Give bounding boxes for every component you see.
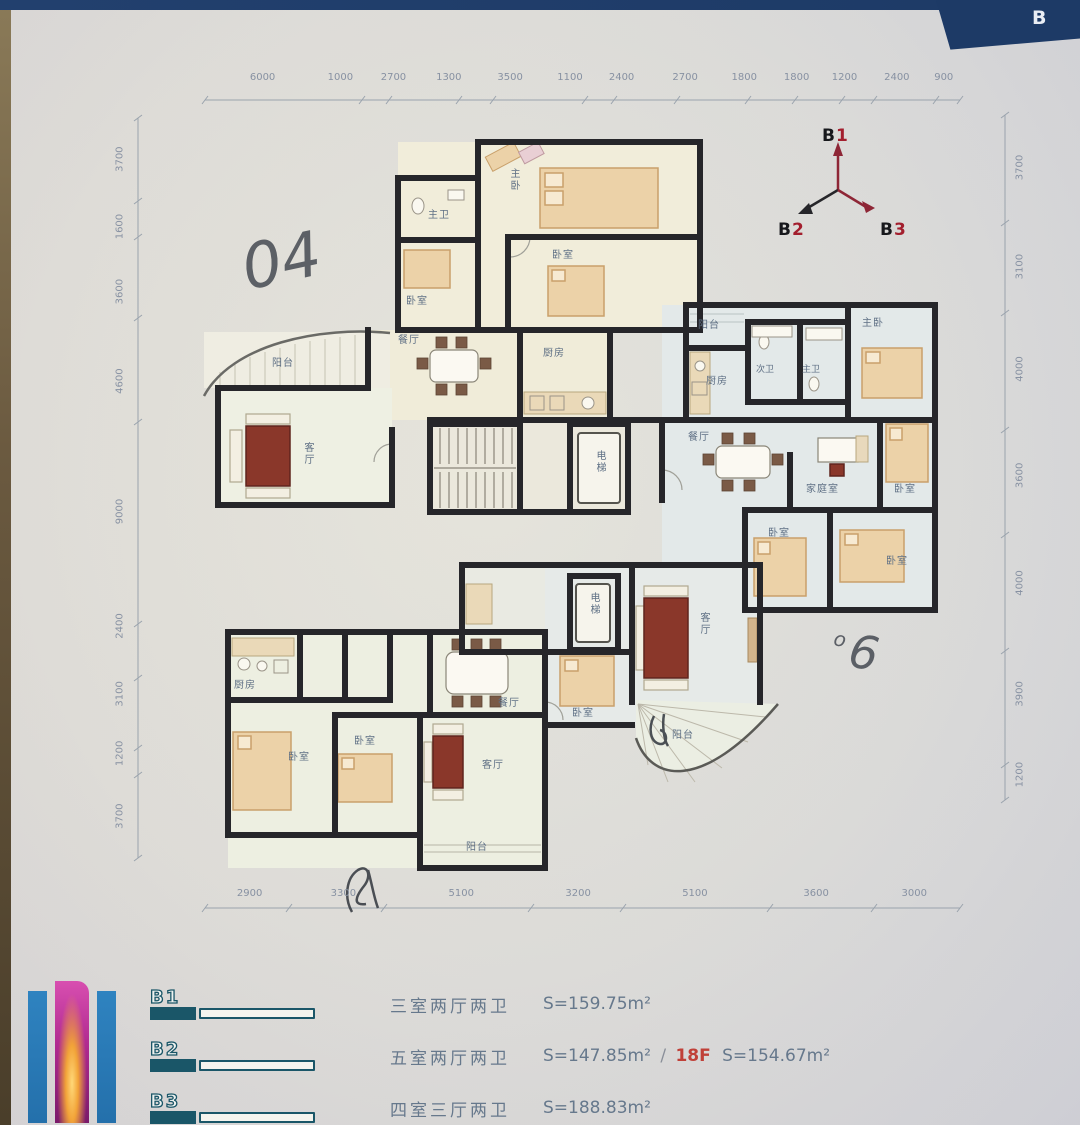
legend-bar-solid xyxy=(150,1007,196,1020)
dim-value: 3700 xyxy=(1012,115,1028,220)
dim-value: 3600 xyxy=(764,888,869,902)
dim-value: 1800 xyxy=(770,72,822,86)
legend-code: B3 xyxy=(150,1093,320,1110)
dim-value: 3000 xyxy=(869,888,961,902)
compass-letter: B xyxy=(778,220,792,240)
dim-value: 3100 xyxy=(1012,220,1028,312)
logo-tower-panel xyxy=(55,981,89,1123)
legend-row-b2: B2 五室两厅两卫 S=147.85m² / 18F S=154.67m² xyxy=(150,1034,830,1078)
dim-value: 1100 xyxy=(549,72,591,86)
dim-value: 5100 xyxy=(626,888,764,902)
dim-value: 5100 xyxy=(392,888,530,902)
corner-banner-letter: B xyxy=(1032,7,1046,29)
legend-bar-solid xyxy=(150,1111,196,1124)
compass-label-b3: B3 xyxy=(880,220,907,240)
compass-label-b2: B2 xyxy=(778,220,805,240)
dim-value: 900 xyxy=(927,72,960,86)
legend-bar-outline xyxy=(199,1112,315,1123)
label-unitA-bedroom-2: 卧室 xyxy=(406,292,428,307)
dim-value: 3900 xyxy=(1012,639,1028,749)
dim-value: 4000 xyxy=(1012,527,1028,639)
label-unitA-bedroom-1: 卧室 xyxy=(552,246,574,261)
label-unitC-bedroom-1: 卧室 xyxy=(288,748,310,763)
dim-value: 1200 xyxy=(112,731,128,775)
compass-arrows xyxy=(798,142,875,214)
legend-unit-area: S=147.85m² / 18F S=154.67m² xyxy=(543,1046,830,1066)
label-unitD-bedroom: 卧室 xyxy=(572,704,594,719)
legend-unit-area: S=188.83m² xyxy=(543,1098,665,1118)
label-unitB-balcony: 阳台 xyxy=(698,316,720,331)
dim-value: 1200 xyxy=(823,72,866,86)
dimensions-bottom: 2900 3300 5100 3200 5100 3600 3000 xyxy=(205,888,960,902)
legend-bar xyxy=(150,1007,320,1020)
dim-value: 3300 xyxy=(294,888,392,902)
legend-bar xyxy=(150,1059,320,1072)
handwritten-prefix: o xyxy=(832,626,848,652)
legend-code: B2 xyxy=(150,1041,320,1058)
label-unitC-balcony: 阳台 xyxy=(466,838,488,853)
legend-area-value: S=159.75m² xyxy=(543,994,651,1014)
label-unitB-family-room: 家庭室 xyxy=(806,480,839,495)
dim-value: 2400 xyxy=(591,72,652,86)
legend-icon-b2: B2 xyxy=(150,1041,320,1072)
compass-digit: 3 xyxy=(894,220,907,240)
compass-letter: B xyxy=(880,220,894,240)
dim-value: 3600 xyxy=(112,251,128,332)
dim-value: 3600 xyxy=(1012,424,1028,527)
handwritten-unit-number-right: o 6 xyxy=(828,620,883,681)
legend-floor-note: 18F xyxy=(675,1046,710,1066)
photo-edge-left xyxy=(0,0,11,1125)
label-unitA-living: 客厅 xyxy=(300,442,315,466)
dim-value: 2400 xyxy=(112,595,128,658)
legend-row-b3: B3 四室三厅两卫 S=188.83m² xyxy=(150,1086,665,1125)
label-elevator-1: 电梯 xyxy=(592,450,607,474)
dim-value: 1600 xyxy=(112,201,128,251)
label-elevator-2: 电梯 xyxy=(586,592,601,616)
label-unitB-kitchen: 厨房 xyxy=(706,372,728,387)
legend-code: B1 xyxy=(150,989,320,1006)
legend-icon-b3: B3 xyxy=(150,1093,320,1124)
label-unitC-dining: 餐厅 xyxy=(498,694,520,709)
dim-value: 2700 xyxy=(361,72,427,86)
legend-unit-type: 五室两厅两卫 xyxy=(390,1044,525,1069)
dim-value: 4600 xyxy=(112,333,128,430)
floorplan-drawing xyxy=(0,0,1080,1125)
floorplan-page: B 6000 1000 2700 1300 3500 1100 2400 270… xyxy=(0,0,1080,1125)
dim-value: 4000 xyxy=(1012,313,1028,425)
label-unitA-master-bath: 主卫 xyxy=(428,206,450,221)
logo-bar-left xyxy=(28,991,47,1123)
legend-area-value: S=147.85m² xyxy=(543,1046,651,1066)
dim-value: 3700 xyxy=(112,118,128,201)
label-unitD-balcony: 阳台 xyxy=(672,726,694,741)
dimensions-top: 6000 1000 2700 1300 3500 1100 2400 2700 … xyxy=(205,72,960,86)
dim-value: 1000 xyxy=(320,72,360,86)
legend-icon-b1: B1 xyxy=(150,989,320,1020)
dimensions-right: 3700 3100 4000 3600 4000 3900 1200 xyxy=(1012,115,1028,800)
label-unitB-dining: 餐厅 xyxy=(688,428,710,443)
dimensions-left: 3700 1600 3600 4600 9000 2400 3100 1200 … xyxy=(112,118,128,858)
dim-value: 6000 xyxy=(205,72,320,86)
legend-area-value: S=188.83m² xyxy=(543,1098,651,1118)
dim-value: 2700 xyxy=(652,72,718,86)
compass-digit: 2 xyxy=(792,220,805,240)
legend-unit-type: 三室两厅两卫 xyxy=(390,992,525,1017)
legend-bar-solid xyxy=(150,1059,196,1072)
dim-value: 3100 xyxy=(112,657,128,731)
compass-label-b1: B1 xyxy=(822,126,849,146)
legend-bar xyxy=(150,1111,320,1124)
legend-row-b1: B1 三室两厅两卫 S=159.75m² xyxy=(150,982,665,1026)
legend-unit-area: S=159.75m² xyxy=(543,994,665,1014)
label-unitA-kitchen: 厨房 xyxy=(543,344,565,359)
label-unitB-master-bath: 主卫 xyxy=(802,362,820,375)
label-unitB-second-bath: 次卫 xyxy=(756,362,774,375)
dim-value: 2400 xyxy=(866,72,927,86)
legend-area-alt: S=154.67m² xyxy=(722,1046,830,1066)
legend-bar-outline xyxy=(199,1060,315,1071)
dim-value: 1800 xyxy=(718,72,770,86)
label-unitA-dining: 餐厅 xyxy=(398,331,420,346)
label-unitA-balcony: 阳台 xyxy=(272,354,294,369)
label-unitB-bedroom-3: 卧室 xyxy=(886,552,908,567)
dim-value: 9000 xyxy=(112,429,128,594)
legend-unit-type: 四室三厅两卫 xyxy=(390,1096,525,1121)
top-bar xyxy=(0,0,1080,10)
label-unitB-bedroom-2: 卧室 xyxy=(768,524,790,539)
dim-value: 1300 xyxy=(426,72,471,86)
label-unitA-master-bedroom: 主卧 xyxy=(506,168,521,192)
compass-letter: B xyxy=(822,126,836,146)
dim-value: 2900 xyxy=(205,888,294,902)
legend-area-separator: / xyxy=(660,1046,666,1066)
dim-value: 1200 xyxy=(1012,749,1028,800)
dim-value: 3200 xyxy=(530,888,626,902)
compass-digit: 1 xyxy=(836,126,849,146)
legend-bar-outline xyxy=(199,1008,315,1019)
label-unitC-bedroom-2: 卧室 xyxy=(354,732,376,747)
label-unitC-living: 客厅 xyxy=(482,756,504,771)
dim-value: 3700 xyxy=(112,775,128,858)
label-unitB-master-bedroom: 主卧 xyxy=(862,314,884,329)
developer-logo xyxy=(28,978,124,1123)
label-unitC-kitchen: 厨房 xyxy=(234,676,256,691)
logo-bar-right xyxy=(97,991,116,1123)
dim-value: 3500 xyxy=(471,72,549,86)
label-unitD-living: 客厅 xyxy=(696,612,711,636)
label-unitB-bedroom-1: 卧室 xyxy=(894,480,916,495)
